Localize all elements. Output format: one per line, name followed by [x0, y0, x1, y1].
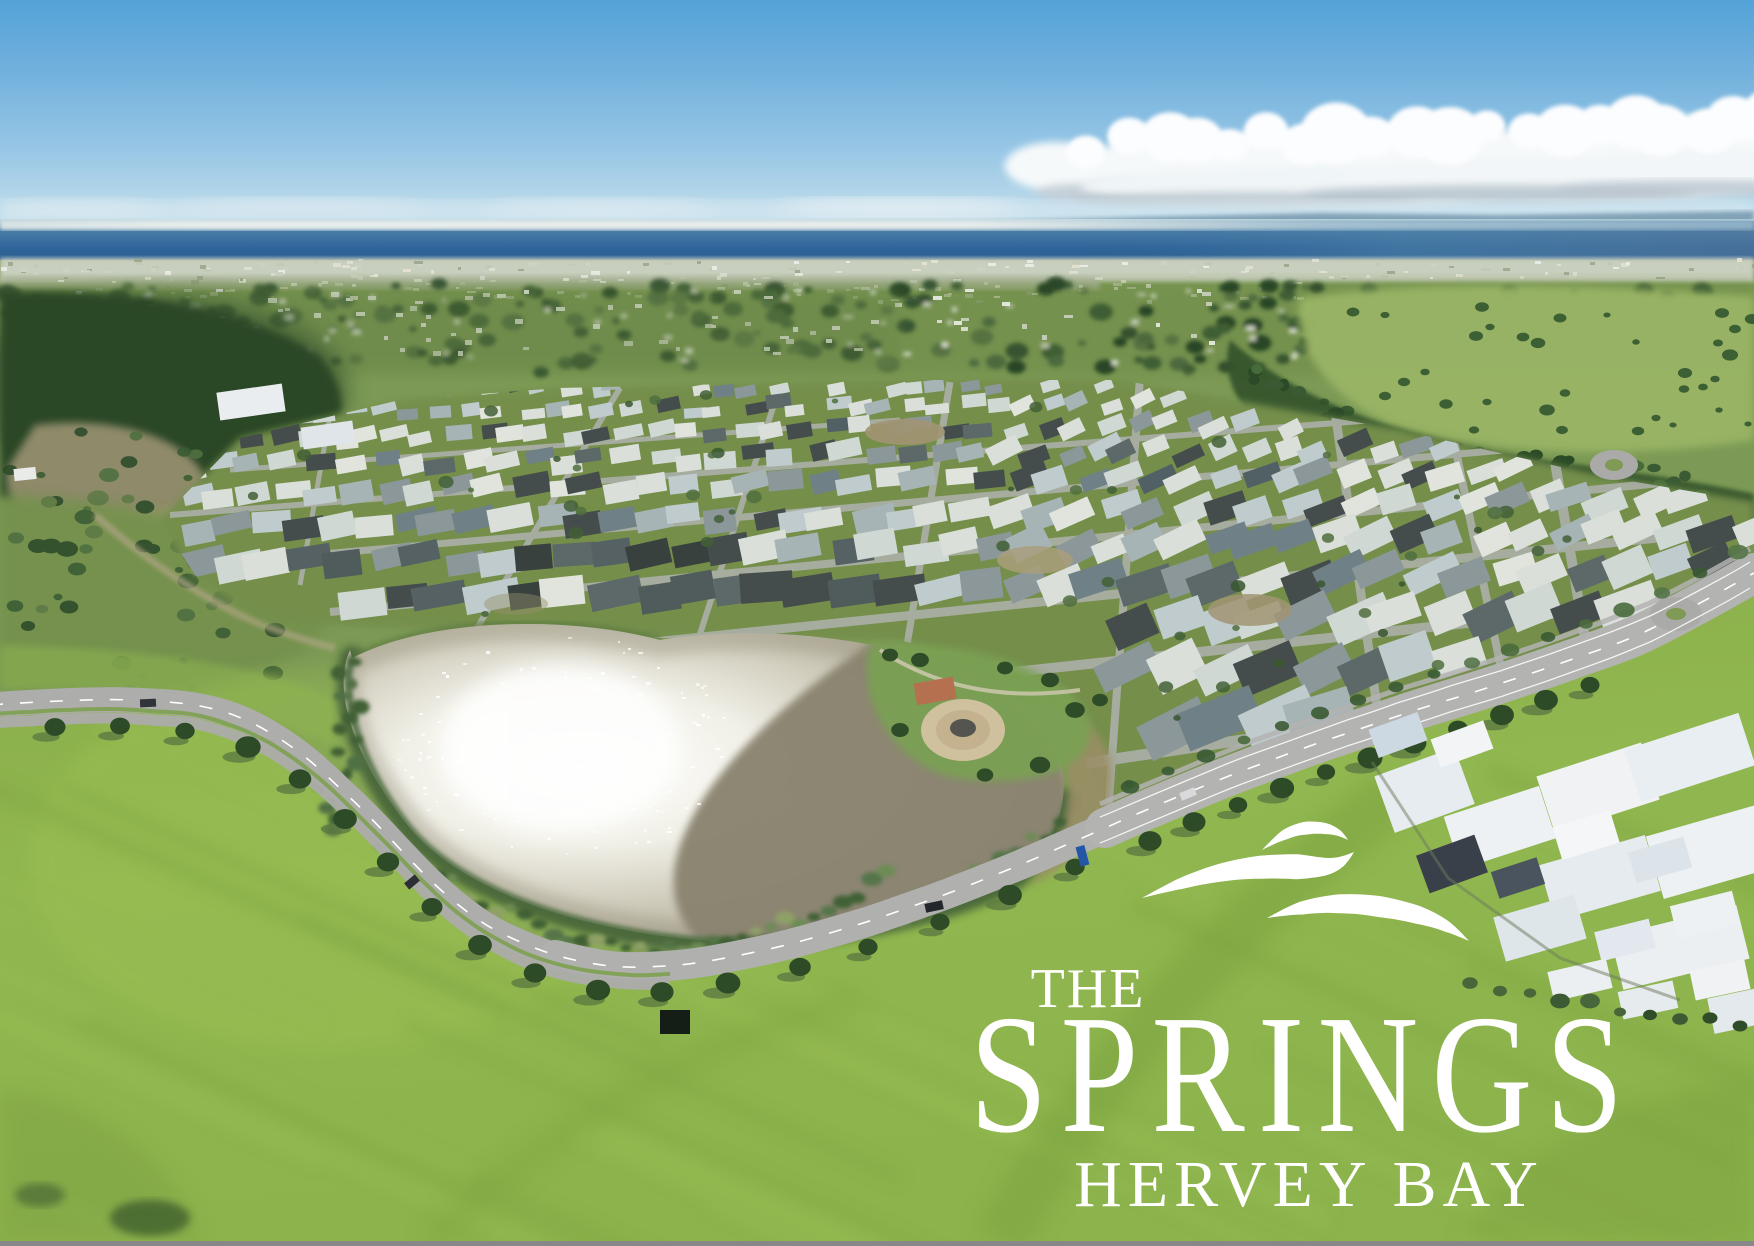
- svg-text:HERVEY BAY: HERVEY BAY: [1074, 1148, 1544, 1221]
- svg-text:SPRINGS: SPRINGS: [970, 981, 1637, 1168]
